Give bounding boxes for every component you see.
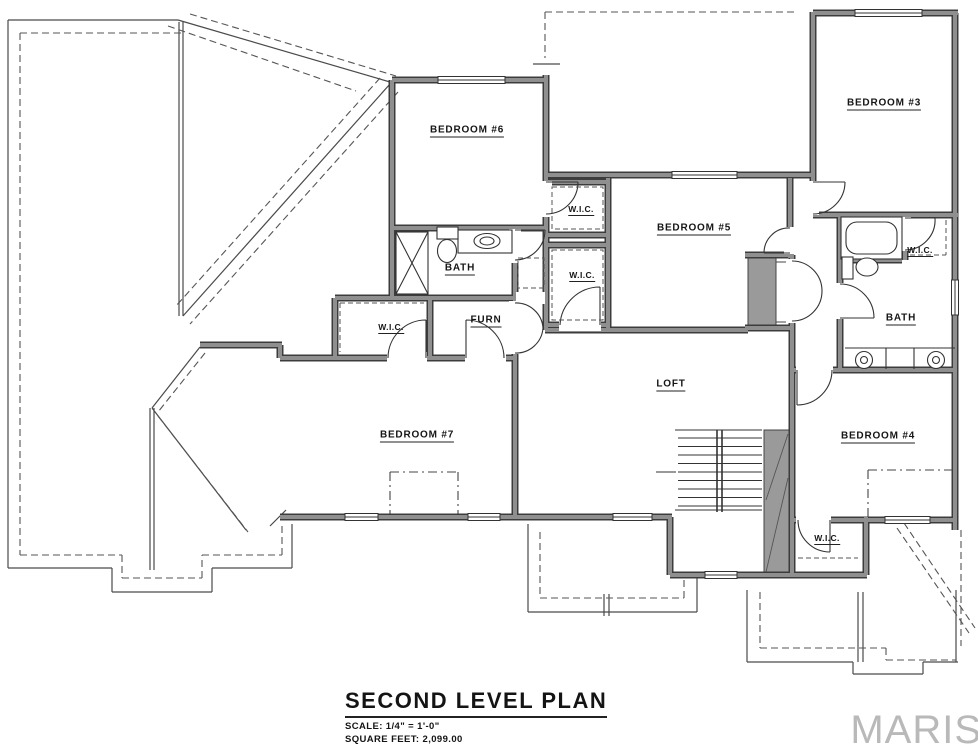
square-feet-note: SQUARE FEET: 2,099.00 bbox=[345, 734, 607, 745]
room-label-bath-right: BATH bbox=[886, 313, 916, 326]
toilet-right bbox=[842, 257, 878, 279]
room-label-bedroom-7: BEDROOM #7 bbox=[380, 430, 454, 443]
room-label-wic-hall-lower: W.I.C. bbox=[569, 270, 595, 282]
room-label-loft: LOFT bbox=[656, 379, 685, 392]
stairs bbox=[656, 430, 762, 512]
maris-watermark: MARIS bbox=[850, 708, 978, 745]
shaded-chase bbox=[748, 258, 791, 575]
vanity-sink-left bbox=[458, 230, 512, 253]
page-title: SECOND LEVEL PLAN bbox=[345, 688, 607, 718]
room-label-bedroom-3: BEDROOM #3 bbox=[847, 98, 921, 111]
title-block: SECOND LEVEL PLAN SCALE: 1/4" = 1'-0" SQ… bbox=[345, 688, 607, 745]
room-label-furnace: FURN bbox=[471, 315, 502, 328]
scale-note: SCALE: 1/4" = 1'-0" bbox=[345, 721, 607, 732]
room-label-bedroom-6: BEDROOM #6 bbox=[430, 125, 504, 138]
room-label-bedroom-4: BEDROOM #4 bbox=[841, 431, 915, 444]
room-label-wic-bath: W.I.C. bbox=[907, 245, 933, 257]
bathtub bbox=[841, 217, 902, 259]
room-label-wic-hall-upper: W.I.C. bbox=[568, 204, 594, 216]
windows bbox=[345, 10, 959, 579]
double-vanity bbox=[845, 348, 955, 369]
room-label-bedroom-5: BEDROOM #5 bbox=[657, 223, 731, 236]
floor-plan-page: BEDROOM #6 BEDROOM #3 BEDROOM #5 BEDROOM… bbox=[0, 0, 978, 745]
room-label-bath-left: BATH bbox=[445, 263, 475, 276]
toilet-left bbox=[437, 227, 458, 263]
room-label-wic-bedroom7: W.I.C. bbox=[378, 322, 404, 334]
linen-chase-x-box bbox=[396, 232, 428, 294]
fixtures bbox=[396, 217, 955, 369]
room-label-wic-bedroom4: W.I.C. bbox=[814, 533, 840, 545]
attic-access bbox=[518, 258, 544, 288]
ceiling-breaks bbox=[390, 470, 952, 517]
floor-plan-drawing bbox=[0, 0, 978, 745]
